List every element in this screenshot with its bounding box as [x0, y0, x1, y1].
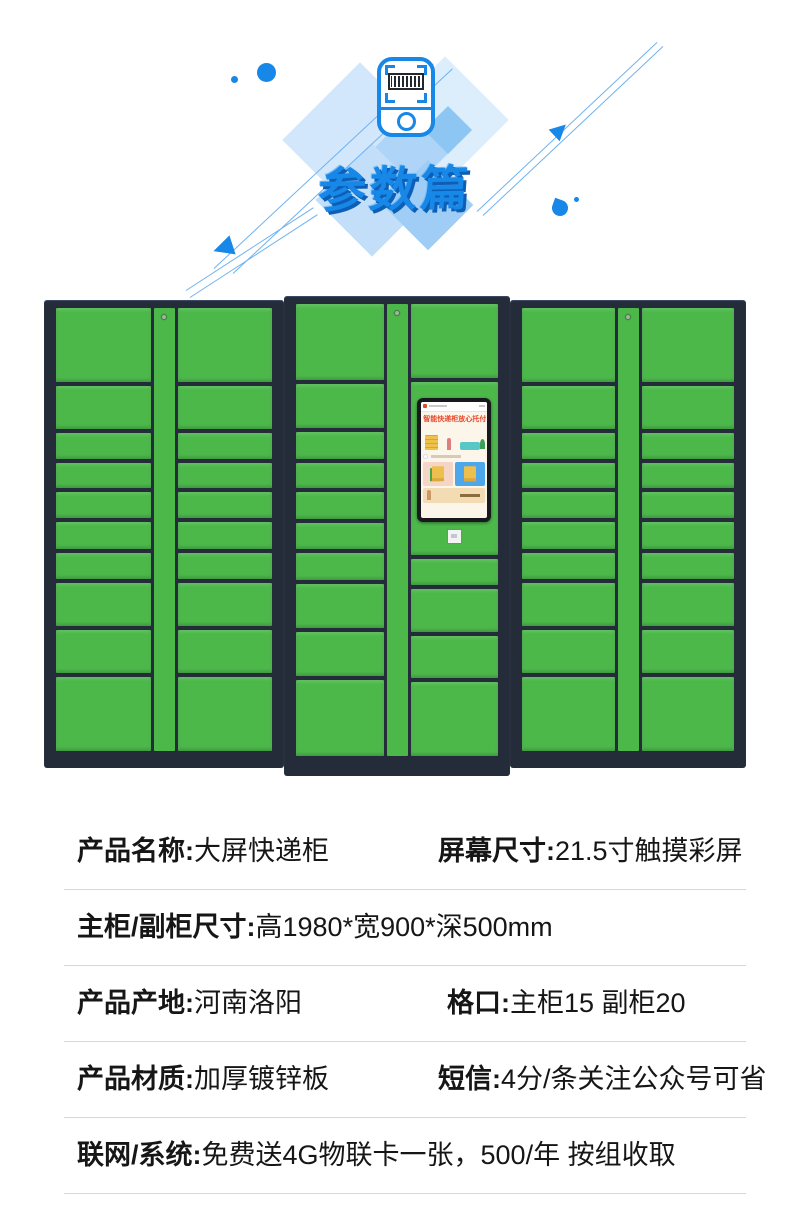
spec-value: 主柜15 副柜20	[510, 988, 686, 1018]
spec-row: 产品产地:河南洛阳 格口:主柜15 副柜20	[64, 966, 746, 1042]
locker-door	[178, 553, 273, 579]
locker-door	[522, 386, 615, 429]
locker-door	[642, 522, 735, 548]
screen-search-row	[423, 453, 485, 460]
locker-door	[56, 492, 151, 518]
spec-table: 产品名称:大屏快递柜 屏幕尺寸:21.5寸触摸彩屏 主柜/副柜尺寸:高1980*…	[64, 814, 746, 1194]
locker-door	[522, 522, 615, 548]
locker-door	[178, 433, 273, 459]
locker-door	[522, 583, 615, 626]
product-parameter-page: 参数篇	[0, 0, 790, 1208]
locker-door	[411, 682, 499, 756]
spec-value: 大屏快递柜	[194, 836, 329, 866]
locker-door	[178, 308, 273, 382]
locker-door	[56, 433, 151, 459]
locker-door	[522, 433, 615, 459]
locker-door	[178, 522, 273, 548]
door-column	[178, 308, 273, 751]
scan-button	[447, 529, 462, 544]
person-illustration-icon	[427, 490, 431, 500]
section-title: 参数篇	[0, 143, 790, 227]
locker-door	[522, 630, 615, 673]
locker-door	[296, 680, 384, 756]
screen-bottom-card	[423, 488, 485, 503]
locker-door	[296, 432, 384, 459]
locker-icon	[432, 466, 444, 481]
spec-label: 联网/系统:	[77, 1140, 202, 1170]
locker-door	[522, 463, 615, 488]
diagonal-line	[190, 214, 318, 298]
screen-logo-icon	[423, 404, 427, 408]
spec-value: 高1980*宽900*深500mm	[256, 912, 553, 942]
screen-menu-text	[429, 405, 447, 407]
spec-value: 21.5寸触摸彩屏	[555, 836, 743, 866]
main-right-column: 智能快递柜放心托付	[411, 304, 499, 756]
spec-value: 免费送4G物联卡一张，500/年 按组收取	[202, 1140, 676, 1170]
door-column	[642, 308, 735, 751]
locker-door	[56, 630, 151, 673]
locker-door	[642, 630, 735, 673]
locker-door	[296, 304, 384, 380]
pickup-card	[455, 462, 485, 486]
locker-door	[56, 308, 151, 382]
locker-door	[178, 583, 273, 626]
locker-door	[411, 589, 499, 632]
locker-door	[411, 559, 499, 585]
screen-illustration	[423, 426, 485, 451]
spec-label: 屏幕尺寸:	[438, 836, 555, 866]
locker-door	[296, 584, 384, 628]
locker-door	[522, 677, 615, 751]
locker-icon	[464, 466, 476, 481]
divider-strip	[387, 304, 408, 756]
locker-door	[522, 492, 615, 518]
door-column	[296, 304, 384, 756]
locker-door	[178, 386, 273, 429]
spec-value: 4分/条关注公众号可省	[501, 1064, 767, 1094]
sub-cabinet-right	[510, 300, 746, 768]
door-column	[522, 308, 615, 751]
locker-door	[56, 522, 151, 548]
locker-door	[56, 553, 151, 579]
screen-action-cards	[423, 462, 485, 486]
locker-illustration-icon	[425, 435, 438, 450]
spec-label: 产品名称:	[77, 836, 194, 866]
locker-door	[178, 492, 273, 518]
touch-screen: 智能快递柜放心托付	[417, 398, 491, 522]
locker-door	[642, 583, 735, 626]
spec-value: 加厚镀锌板	[194, 1064, 329, 1094]
sofa-illustration-icon	[460, 442, 480, 450]
spec-label: 格口:	[447, 988, 510, 1018]
dot-shape	[231, 76, 238, 83]
door-column	[56, 308, 151, 751]
locker-door	[178, 630, 273, 673]
locker-door	[642, 386, 735, 429]
divider-strip	[618, 308, 639, 751]
plant-illustration-icon	[480, 439, 485, 449]
screw-icon	[395, 311, 399, 315]
spec-label: 主柜/副柜尺寸:	[77, 912, 256, 942]
screen-panel: 智能快递柜放心托付	[411, 382, 499, 555]
locker-door	[56, 677, 151, 751]
dot-shape	[257, 63, 276, 82]
locker-door	[296, 492, 384, 519]
deposit-card	[423, 462, 453, 486]
text-bar	[431, 455, 461, 458]
text-bar	[460, 494, 480, 497]
screw-icon	[626, 315, 630, 319]
barcode-scanner-icon	[377, 57, 435, 137]
locker-door	[642, 433, 735, 459]
spec-label: 产品产地:	[77, 988, 194, 1018]
locker-door	[522, 308, 615, 382]
locker-door	[178, 463, 273, 488]
spec-row: 产品材质:加厚镀锌板 短信:4分/条关注公众号可省	[64, 1042, 746, 1118]
locker-door	[296, 523, 384, 550]
circle-icon	[423, 454, 428, 459]
screen-statusbar	[421, 402, 487, 412]
main-cabinet: 智能快递柜放心托付	[284, 296, 510, 776]
screw-icon	[162, 315, 166, 319]
arrow-triangle-icon	[210, 235, 235, 260]
locker-door	[56, 386, 151, 429]
spec-value: 河南洛阳	[194, 988, 302, 1018]
locker-door	[56, 583, 151, 626]
person-illustration-icon	[447, 438, 451, 450]
locker-door	[296, 632, 384, 676]
locker-door	[642, 492, 735, 518]
locker-door	[411, 304, 499, 378]
locker-cabinets-image: 智能快递柜放心托付	[0, 296, 790, 786]
sub-cabinet-left	[44, 300, 284, 768]
spec-row: 主柜/副柜尺寸:高1980*宽900*深500mm	[64, 890, 746, 966]
button-circle-icon	[397, 112, 416, 131]
locker-door	[411, 636, 499, 679]
screen-slogan: 智能快递柜放心托付	[423, 416, 485, 424]
spec-label: 短信:	[438, 1064, 501, 1094]
spec-row: 产品名称:大屏快递柜 屏幕尺寸:21.5寸触摸彩屏	[64, 814, 746, 890]
locker-door	[522, 553, 615, 579]
spec-label: 产品材质:	[77, 1064, 194, 1094]
locker-door	[296, 384, 384, 428]
spec-row: 联网/系统:免费送4G物联卡一张，500/年 按组收取	[64, 1118, 746, 1194]
locker-door	[296, 463, 384, 489]
screen-time-text	[479, 405, 485, 407]
locker-door	[642, 553, 735, 579]
locker-door	[178, 677, 273, 751]
locker-door	[642, 463, 735, 488]
arrow-triangle-icon	[549, 119, 572, 142]
locker-door	[296, 553, 384, 580]
barcode-icon	[388, 73, 424, 90]
locker-door	[56, 463, 151, 488]
divider-strip	[154, 308, 175, 751]
locker-door	[642, 308, 735, 382]
header-banner: 参数篇	[0, 0, 790, 296]
locker-door	[642, 677, 735, 751]
